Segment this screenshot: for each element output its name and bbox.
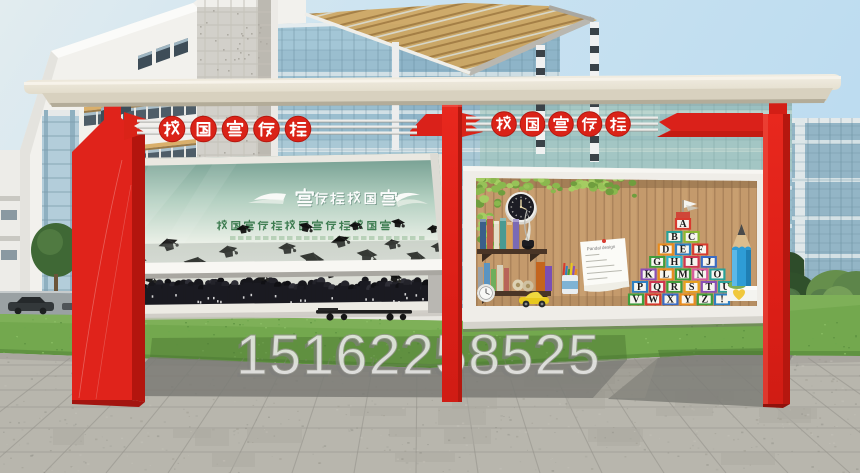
svg-text:C: C: [688, 232, 695, 243]
svg-text:N: N: [697, 270, 705, 281]
svg-text:A: A: [679, 219, 687, 230]
svg-text:X: X: [667, 295, 675, 306]
svg-text:F: F: [697, 245, 703, 256]
svg-text:H: H: [671, 257, 679, 268]
svg-text:L: L: [662, 270, 669, 281]
svg-text:D: D: [662, 245, 669, 256]
svg-text:M: M: [678, 270, 688, 281]
svg-text:T: T: [705, 282, 712, 293]
svg-text:Z: Z: [701, 295, 708, 306]
svg-text:G: G: [653, 257, 661, 268]
svg-text:Q: Q: [653, 282, 661, 293]
svg-text:P: P: [637, 282, 643, 293]
svg-text:15162258525: 15162258525: [236, 323, 601, 387]
svg-text:E: E: [680, 245, 687, 256]
svg-text:R: R: [671, 282, 679, 293]
svg-text:O: O: [714, 270, 722, 281]
svg-text:V: V: [632, 295, 640, 306]
svg-text:!: !: [720, 295, 723, 306]
svg-text:W: W: [648, 295, 658, 306]
svg-text:Y: Y: [684, 295, 692, 306]
svg-text:B: B: [671, 232, 678, 243]
svg-text:S: S: [689, 282, 695, 293]
svg-text:J: J: [706, 257, 711, 268]
svg-text:K: K: [645, 270, 653, 281]
svg-text:I: I: [690, 257, 694, 268]
